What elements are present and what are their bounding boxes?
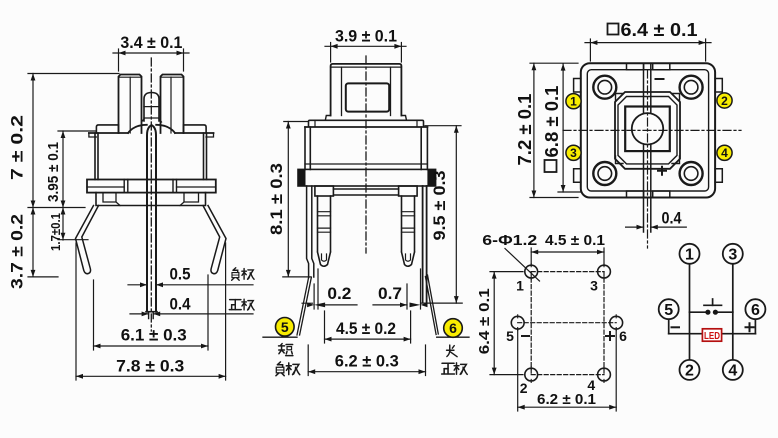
svg-text:0.5: 0.5 [170, 265, 191, 284]
svg-text:6-Φ1.2: 6-Φ1.2 [482, 232, 537, 249]
svg-text:5: 5 [664, 302, 673, 319]
svg-text:6: 6 [619, 328, 627, 344]
svg-text:3: 3 [570, 146, 577, 160]
svg-text:0.2: 0.2 [327, 284, 351, 303]
svg-text:2: 2 [520, 380, 528, 396]
svg-text:7.2 ± 0.1: 7.2 ± 0.1 [515, 94, 535, 166]
svg-text:0.7: 0.7 [378, 284, 402, 303]
svg-text:3.4 ± 0.1: 3.4 ± 0.1 [120, 33, 182, 52]
svg-text:1: 1 [570, 95, 577, 109]
svg-text:6.4 ± 0.1: 6.4 ± 0.1 [476, 288, 493, 354]
svg-text:6: 6 [751, 302, 760, 319]
svg-text:7 ± 0.2: 7 ± 0.2 [8, 115, 27, 180]
svg-text:3.7 ± 0.2: 3.7 ± 0.2 [8, 214, 27, 289]
svg-text:8.1 ± 0.3: 8.1 ± 0.3 [267, 163, 286, 235]
svg-text:0.4: 0.4 [170, 295, 191, 314]
svg-text:3: 3 [590, 278, 598, 294]
svg-text:3.9 ± 0.1: 3.9 ± 0.1 [335, 27, 397, 46]
svg-text:5: 5 [281, 319, 289, 335]
svg-text:2: 2 [685, 363, 694, 380]
svg-text:6.8 ± 0.1: 6.8 ± 0.1 [542, 86, 562, 158]
svg-text:0.4: 0.4 [662, 209, 682, 228]
svg-text:3.95 ± 0.1: 3.95 ± 0.1 [45, 142, 62, 202]
svg-text:5: 5 [506, 328, 514, 344]
svg-text:LED: LED [704, 330, 720, 342]
svg-text:7.8 ± 0.3: 7.8 ± 0.3 [116, 357, 184, 376]
svg-text:6.2 ± 0.3: 6.2 ± 0.3 [335, 352, 399, 371]
svg-text:1: 1 [516, 278, 524, 294]
svg-text:6.1 ± 0.3: 6.1 ± 0.3 [121, 326, 187, 345]
svg-text:6.2 ± 0.1: 6.2 ± 0.1 [537, 391, 596, 408]
svg-text:6.4 ± 0.1: 6.4 ± 0.1 [621, 20, 698, 40]
svg-text:4: 4 [728, 363, 737, 380]
svg-text:3: 3 [728, 247, 737, 264]
svg-text:6: 6 [449, 320, 457, 336]
svg-text:4.5 ± 0.1: 4.5 ± 0.1 [545, 232, 605, 249]
svg-text:4: 4 [721, 146, 728, 160]
svg-text:2: 2 [721, 94, 728, 108]
svg-text:1: 1 [685, 247, 694, 264]
svg-text:4.5 ± 0.2: 4.5 ± 0.2 [336, 319, 396, 338]
svg-text:9.5 ± 0.3: 9.5 ± 0.3 [430, 171, 449, 241]
svg-text:1.7±0.1: 1.7±0.1 [48, 213, 63, 251]
